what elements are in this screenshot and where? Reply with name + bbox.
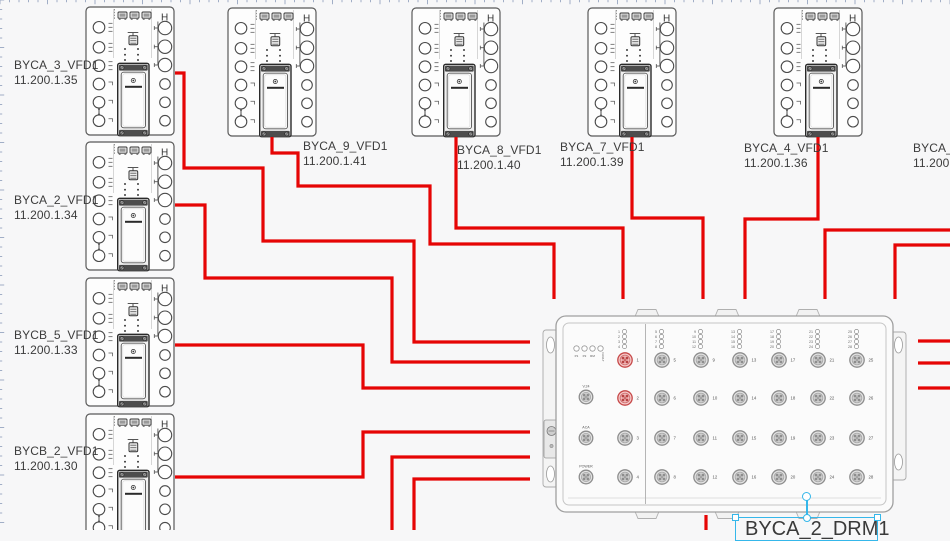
device-name: BYCB_2_VFD1 <box>14 444 98 459</box>
m12-port-24 <box>811 470 825 484</box>
port-led-19 <box>776 339 780 343</box>
port-led-8 <box>659 344 663 348</box>
connector-hole <box>93 313 105 325</box>
connector-hole <box>160 79 171 90</box>
vfd-device-BYCA_4[interactable]: H <box>774 8 862 137</box>
module-nameplate <box>125 221 142 223</box>
port-led-num-16: 16 <box>731 345 735 349</box>
port-led-3 <box>622 339 626 343</box>
connector-hole <box>595 61 607 73</box>
connector-hole <box>302 116 313 127</box>
status-led-FAULT <box>598 346 603 351</box>
connector-hole <box>235 116 247 128</box>
status-led-RM <box>590 346 595 351</box>
device-ip: 11.200.1.35 <box>14 73 98 88</box>
port-number-26: 26 <box>869 396 874 401</box>
module-nameplate <box>267 87 284 89</box>
m12-port-5 <box>655 353 669 367</box>
port-led-24 <box>815 344 819 348</box>
connector-hole <box>158 58 171 71</box>
port-led-2 <box>622 334 626 338</box>
m12-port-10 <box>694 391 708 405</box>
connector-hole <box>93 293 105 305</box>
connector-hole <box>160 115 171 126</box>
connector-hole <box>158 21 171 34</box>
rotation-handle[interactable] <box>802 492 811 501</box>
connector-hole <box>235 98 247 110</box>
port-led-28 <box>854 344 858 348</box>
port-led-num-10: 10 <box>692 335 696 339</box>
selection-handle-top-left[interactable] <box>732 514 739 521</box>
port-led-num-21: 21 <box>809 330 813 334</box>
connector-hole <box>302 80 313 91</box>
port-led-20 <box>776 344 780 348</box>
port-led-5 <box>659 329 663 333</box>
m12-port-13 <box>733 353 747 367</box>
port-led-18 <box>776 334 780 338</box>
connector-hole <box>235 23 247 35</box>
connector-hole <box>300 59 313 72</box>
device-name: BYCA_9_VFD1 <box>303 139 387 154</box>
connector-hole <box>660 59 673 72</box>
connector-hole <box>781 23 793 35</box>
port-number-15: 15 <box>752 436 757 441</box>
port-number-17: 17 <box>791 358 796 363</box>
port-led-num-2: 2 <box>618 335 620 339</box>
port-led-num-26: 26 <box>848 335 852 339</box>
port-number-16: 16 <box>752 475 757 480</box>
vfd-label-BYCA_9[interactable]: BYCA_9_VFD1 11.200.1.41 <box>303 139 387 170</box>
connector-hole <box>781 98 793 110</box>
connector-hole <box>93 504 105 516</box>
status-led-P2 <box>582 346 587 351</box>
connector-hole <box>419 43 431 55</box>
connector-hole <box>93 386 105 398</box>
port-led-num-6: 6 <box>655 335 657 339</box>
port-number-10: 10 <box>713 396 718 401</box>
network-wire-12[interactable] <box>414 479 530 530</box>
m12-port-3 <box>618 431 632 445</box>
port-led-21 <box>815 329 819 333</box>
vfd-device-BYCB_5[interactable]: H <box>86 278 174 407</box>
connector-hole <box>158 292 171 305</box>
aux-port-POWER <box>579 470 593 484</box>
port-number-22: 22 <box>830 396 835 401</box>
device-name: BYCA_8_VFD1 <box>457 143 541 158</box>
port-number-24: 24 <box>830 475 835 480</box>
m12-port-23 <box>811 431 825 445</box>
device-ip: 11.200.1.39 <box>560 155 644 170</box>
m12-port-8 <box>655 470 669 484</box>
connector-hole <box>160 232 171 243</box>
port-led-num-19: 19 <box>770 340 774 344</box>
port-number-20: 20 <box>791 475 796 480</box>
m12-port-22 <box>811 391 825 405</box>
connector-hole <box>93 232 105 244</box>
ruler-left <box>0 0 4 523</box>
m12-port-15 <box>733 431 747 445</box>
connector-hole <box>93 368 105 380</box>
svg-text:V.24: V.24 <box>582 385 589 389</box>
connector-hole <box>781 61 793 73</box>
port-led-num-18: 18 <box>770 335 774 339</box>
port-led-num-27: 27 <box>848 340 852 344</box>
connector-hole <box>160 386 171 397</box>
connector-hole <box>781 79 793 91</box>
port-led-num-17: 17 <box>770 330 774 334</box>
port-led-num-13: 13 <box>731 330 735 334</box>
connector-hole <box>93 485 105 497</box>
m12-port-2 <box>618 391 632 405</box>
connector-hole <box>158 40 171 53</box>
m12-port-16 <box>733 470 747 484</box>
vfd-label-BYCA_3[interactable]: BYCA_3_VFD1 11.200.1.35 <box>14 58 98 89</box>
module-nameplate <box>451 87 468 89</box>
port-led-num-9: 9 <box>694 330 696 334</box>
connector-hole <box>486 80 497 91</box>
port-led-10 <box>698 334 702 338</box>
vfd-label-BYCA_4[interactable]: BYCA_4_VFD1 11.200.1.36 <box>744 141 828 172</box>
vfd-device-BYCA_9[interactable]: H <box>228 8 316 137</box>
connector-hole <box>93 42 105 54</box>
network-wire-7[interactable] <box>895 245 950 299</box>
port-led-num-25: 25 <box>848 330 852 334</box>
m12-port-11 <box>694 431 708 445</box>
connector-hole <box>93 157 105 169</box>
connector-hole <box>484 22 497 35</box>
port-led-num-28: 28 <box>848 345 852 349</box>
connector-hole <box>235 61 247 73</box>
network-wire-6[interactable] <box>825 230 950 299</box>
port-number-13: 13 <box>752 358 757 363</box>
port-led-27 <box>854 339 858 343</box>
connector-hole <box>93 522 105 530</box>
connector-hole <box>848 116 859 127</box>
vfd-label-BYCA_7[interactable]: BYCA_7_VFD1 11.200.1.39 <box>560 140 644 171</box>
m12-port-25 <box>850 353 864 367</box>
connector-hole <box>158 329 171 342</box>
connector-hole <box>160 504 171 515</box>
selection-box[interactable]: BYCA_2_DRM1 <box>735 517 878 541</box>
connector-hole <box>662 98 673 109</box>
connector-hole <box>660 22 673 35</box>
module-nameplate <box>627 87 644 89</box>
port-led-num-4: 4 <box>618 345 620 349</box>
port-led-num-3: 3 <box>618 340 620 344</box>
port-led-num-14: 14 <box>731 335 735 339</box>
network-wire-9[interactable] <box>175 345 530 388</box>
port-number-14: 14 <box>752 396 757 401</box>
diagram-canvas: HHHHHHHHP1P2RMFAULTV.24ACAPOWER112233445… <box>0 0 950 530</box>
m12-port-17 <box>772 353 786 367</box>
device-ip: 11.200.1.33 <box>14 343 98 358</box>
connector-hole <box>158 175 171 188</box>
aux-port-ACA <box>579 431 593 445</box>
port-led-num-20: 20 <box>770 345 774 349</box>
connector-hole <box>158 428 171 441</box>
port-led-16 <box>737 344 741 348</box>
port-led-num-5: 5 <box>655 330 657 334</box>
port-led-num-1: 1 <box>618 330 620 334</box>
port-led-9 <box>698 329 702 333</box>
ruler-top <box>0 0 950 4</box>
connector-hole <box>419 98 431 110</box>
network-wire-10[interactable] <box>175 432 530 477</box>
port-led-num-24: 24 <box>809 345 813 349</box>
connector-hole <box>846 22 859 35</box>
connector-hole <box>158 193 171 206</box>
connector-hole <box>595 79 607 91</box>
vfd-label-BYCB_5[interactable]: BYCB_5_VFD1 11.200.1.33 <box>14 328 98 359</box>
connector-hole <box>595 116 607 128</box>
connector-hole <box>595 43 607 55</box>
status-led-P1 <box>574 346 579 351</box>
connector-hole <box>486 98 497 109</box>
vfd-label-BYCA_8[interactable]: BYCA_8_VFD1 11.200.1.40 <box>457 143 541 174</box>
device-name: BYCA_3_VFD1 <box>14 58 98 73</box>
m12-port-9 <box>694 353 708 367</box>
port-led-12 <box>698 344 702 348</box>
connector-hole <box>595 98 607 110</box>
m12-port-14 <box>733 391 747 405</box>
vfd-device-BYCA_8[interactable]: H <box>412 8 500 137</box>
svg-text:FAULT: FAULT <box>601 353 605 362</box>
m12-port-27 <box>850 431 864 445</box>
vfd-label-BYCA_2[interactable]: BYCA_2_VFD1 11.200.1.34 <box>14 193 98 224</box>
device-ip: 11.200.1.36 <box>744 156 828 171</box>
connector-hole <box>93 22 105 34</box>
port-led-6 <box>659 334 663 338</box>
port-led-26 <box>854 334 858 338</box>
port-led-15 <box>737 339 741 343</box>
port-number-25: 25 <box>869 358 874 363</box>
port-number-27: 27 <box>869 436 874 441</box>
connector-hole <box>235 43 247 55</box>
device-name: BYCA_4_VFD1 <box>744 141 828 156</box>
connector-hole <box>486 116 497 127</box>
device-ip: 11.200.1.40 <box>457 158 541 173</box>
port-led-22 <box>815 334 819 338</box>
connector-hole <box>158 447 171 460</box>
m12-port-4 <box>618 470 632 484</box>
connector-hole <box>302 98 313 109</box>
device-name: BYCA_7_VFD1 <box>560 140 644 155</box>
connector-hole <box>300 41 313 54</box>
connector-hole <box>846 41 859 54</box>
drm-switch[interactable]: P1P2RMFAULTV.24ACAPOWER11223344556677889… <box>543 310 906 519</box>
connector-hole <box>662 116 673 127</box>
connector-hole <box>93 429 105 441</box>
connector-hole <box>160 522 171 530</box>
m12-port-21 <box>811 353 825 367</box>
selection-handle-top-right[interactable] <box>874 514 881 521</box>
vfd-device-BYCB_2[interactable]: H <box>86 414 174 530</box>
port-led-num-12: 12 <box>692 345 696 349</box>
port-number-21: 21 <box>830 358 835 363</box>
port-led-1 <box>622 329 626 333</box>
svg-text:ACA: ACA <box>582 426 590 430</box>
connector-hole <box>781 43 793 55</box>
port-number-28: 28 <box>869 475 874 480</box>
connector-hole <box>781 116 793 128</box>
m12-port-19 <box>772 431 786 445</box>
m12-port-18 <box>772 391 786 405</box>
port-number-23: 23 <box>830 436 835 441</box>
port-led-23 <box>815 339 819 343</box>
vfd-device-BYCA_2[interactable]: H <box>86 142 174 271</box>
connector-hole <box>419 79 431 91</box>
device-name: BYCA_2_VFD1 <box>14 193 98 208</box>
port-led-num-7: 7 <box>655 340 657 344</box>
connector-hole <box>484 59 497 72</box>
connector-hole <box>160 214 171 225</box>
port-number-11: 11 <box>713 436 718 441</box>
port-led-17 <box>776 329 780 333</box>
port-number-18: 18 <box>791 396 796 401</box>
port-led-num-22: 22 <box>809 335 813 339</box>
connector-hole <box>158 311 171 324</box>
connector-hole <box>848 80 859 91</box>
port-number-19: 19 <box>791 436 796 441</box>
vfd-device-BYCA_3[interactable]: H <box>86 7 174 136</box>
connector-hole <box>93 115 105 127</box>
port-led-num-11: 11 <box>692 340 696 344</box>
m12-port-28 <box>850 470 864 484</box>
connector-hole <box>846 59 859 72</box>
svg-text:P1: P1 <box>575 354 579 358</box>
port-led-num-8: 8 <box>655 345 657 349</box>
device-name: BYCA_5_ <box>913 141 950 156</box>
connector-hole <box>300 22 313 35</box>
port-led-25 <box>854 329 858 333</box>
connector-hole <box>160 350 171 361</box>
svg-text:RM: RM <box>590 354 595 358</box>
connector-hole <box>484 41 497 54</box>
connector-hole <box>160 97 171 108</box>
m12-port-20 <box>772 470 786 484</box>
connector-hole <box>419 23 431 35</box>
module-nameplate <box>125 357 142 359</box>
connector-hole <box>160 250 171 261</box>
connector-hole <box>660 41 673 54</box>
port-led-4 <box>622 344 626 348</box>
svg-text:P2: P2 <box>583 354 587 358</box>
connector-hole <box>93 177 105 189</box>
m12-port-6 <box>655 391 669 405</box>
vfd-device-BYCA_7[interactable]: H <box>588 8 676 137</box>
module-nameplate <box>813 87 830 89</box>
device-ip: 11.200.1 <box>913 156 950 171</box>
m12-port-26 <box>850 391 864 405</box>
selection-handle-top-middle[interactable] <box>803 514 811 522</box>
connector-hole <box>235 79 247 91</box>
connector-hole <box>595 23 607 35</box>
vfd-label-BYCB_2[interactable]: BYCB_2_VFD1 11.200.1.30 <box>14 444 98 475</box>
port-number-12: 12 <box>713 475 718 480</box>
connector-hole <box>160 486 171 497</box>
connector-hole <box>662 80 673 91</box>
svg-text:POWER: POWER <box>579 465 593 469</box>
port-led-11 <box>698 339 702 343</box>
port-led-7 <box>659 339 663 343</box>
connector-hole <box>419 61 431 73</box>
module-nameplate <box>125 86 142 88</box>
port-led-13 <box>737 329 741 333</box>
port-led-num-15: 15 <box>731 340 735 344</box>
connector-hole <box>93 97 105 109</box>
module-nameplate <box>125 493 142 495</box>
aux-port-V.24 <box>579 390 593 404</box>
connector-hole <box>158 465 171 478</box>
vfd-label-BYCA_5[interactable]: BYCA_5_ 11.200.1 <box>913 141 950 172</box>
connector-hole <box>93 250 105 262</box>
connector-hole <box>160 368 171 379</box>
device-ip: 11.200.1.30 <box>14 459 98 474</box>
port-led-14 <box>737 334 741 338</box>
m12-port-7 <box>655 431 669 445</box>
device-name: BYCB_5_VFD1 <box>14 328 98 343</box>
device-ip: 11.200.1.34 <box>14 208 98 223</box>
connector-hole <box>848 98 859 109</box>
m12-port-12 <box>694 470 708 484</box>
connector-hole <box>419 116 431 128</box>
device-ip: 11.200.1.41 <box>303 154 387 169</box>
m12-port-1 <box>618 353 632 367</box>
connector-hole <box>158 156 171 169</box>
port-led-num-23: 23 <box>809 340 813 344</box>
